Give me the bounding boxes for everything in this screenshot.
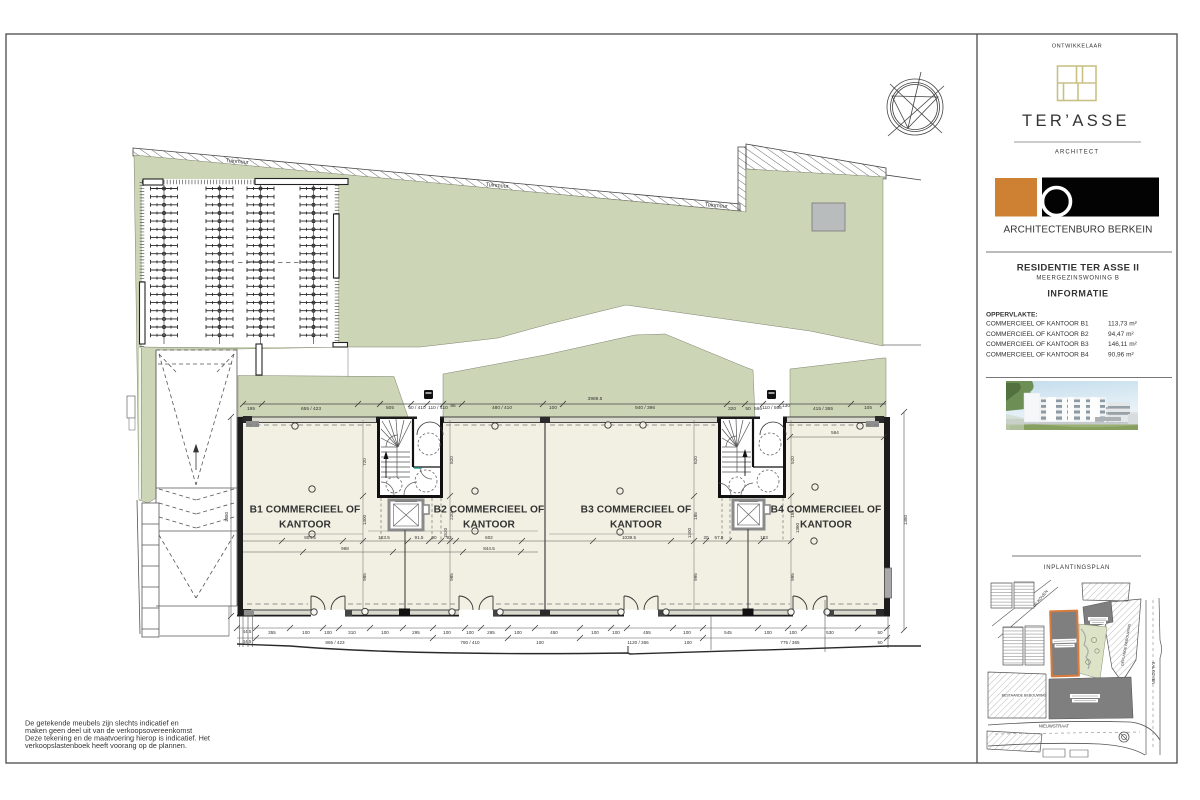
- svg-text:720: 720: [362, 458, 367, 466]
- svg-text:985: 985: [449, 573, 454, 581]
- svg-text:20: 20: [703, 535, 709, 540]
- svg-text:310: 310: [348, 630, 356, 635]
- svg-text:verkoopslastenboek heeft voora: verkoopslastenboek heeft voorang op de p…: [25, 741, 187, 750]
- svg-text:530: 530: [826, 630, 834, 635]
- svg-text:44.5: 44.5: [243, 629, 252, 634]
- svg-text:100: 100: [302, 630, 310, 635]
- svg-text:100: 100: [764, 630, 772, 635]
- svg-text:KALKOVEN: KALKOVEN: [1151, 662, 1156, 685]
- svg-text:TER’ASSE: TER’ASSE: [1022, 112, 1130, 130]
- svg-text:520: 520: [790, 456, 795, 464]
- svg-text:545: 545: [724, 630, 732, 635]
- svg-text:93: 93: [446, 535, 452, 540]
- svg-text:100: 100: [381, 630, 389, 635]
- svg-text:195: 195: [247, 406, 255, 412]
- svg-text:105: 105: [864, 405, 872, 411]
- svg-text:1380: 1380: [224, 511, 229, 522]
- svg-text:3989.5: 3989.5: [588, 396, 603, 402]
- svg-text:50: 50: [745, 406, 751, 412]
- svg-text:100: 100: [536, 640, 544, 645]
- svg-text:B3 COMMERCIEEL OF: B3 COMMERCIEEL OF: [581, 505, 692, 516]
- svg-text:865 / 423: 865 / 423: [325, 640, 345, 645]
- svg-text:185: 185: [693, 512, 698, 520]
- svg-text:566: 566: [754, 406, 762, 412]
- svg-text:94,47 m²: 94,47 m²: [1108, 331, 1134, 338]
- svg-text:100: 100: [612, 630, 620, 635]
- svg-text:90: 90: [431, 535, 437, 540]
- svg-text:1039.5: 1039.5: [622, 535, 636, 540]
- svg-text:COMMERCIEEL OF KANTOOR B1: COMMERCIEEL OF KANTOOR B1: [986, 321, 1089, 328]
- svg-text:100: 100: [789, 630, 797, 635]
- svg-text:820: 820: [449, 456, 454, 464]
- svg-text:480 / 410: 480 / 410: [492, 405, 512, 411]
- svg-text:602: 602: [485, 535, 493, 540]
- svg-text:940 / 396: 940 / 396: [635, 405, 655, 411]
- svg-text:183: 183: [760, 535, 768, 540]
- svg-text:1300: 1300: [687, 527, 692, 538]
- svg-text:130: 130: [782, 403, 790, 409]
- svg-text:564: 564: [831, 430, 839, 435]
- svg-text:MEERGEZINSWONING B: MEERGEZINSWONING B: [1036, 276, 1119, 282]
- svg-text:1300: 1300: [362, 514, 367, 525]
- svg-text:86: 86: [450, 403, 456, 409]
- svg-text:995: 995: [693, 573, 698, 581]
- svg-text:100: 100: [466, 630, 474, 635]
- svg-text:505: 505: [386, 405, 394, 411]
- svg-text:ARCHITECT: ARCHITECT: [1055, 150, 1099, 156]
- svg-text:50: 50: [877, 640, 883, 645]
- svg-text:90,96 m²: 90,96 m²: [1108, 352, 1134, 359]
- svg-text:804.5: 804.5: [304, 535, 316, 540]
- svg-text:BESTAANDE BEBOUWING: BESTAANDE BEBOUWING: [1002, 694, 1047, 698]
- svg-text:995: 995: [790, 573, 795, 581]
- svg-text:ONTWIKKELAAR: ONTWIKKELAAR: [1052, 44, 1102, 50]
- svg-text:455: 455: [643, 630, 651, 635]
- svg-text:1380: 1380: [903, 514, 908, 525]
- svg-text:OPPERVLAKTE:: OPPERVLAKTE:: [986, 312, 1038, 319]
- svg-text:100: 100: [324, 630, 332, 635]
- svg-text:57.5: 57.5: [715, 535, 724, 540]
- svg-text:320: 320: [728, 406, 736, 412]
- svg-text:ARCHITECTENBURO BERKEIN: ARCHITECTENBURO BERKEIN: [1004, 225, 1153, 236]
- svg-text:415 / 365: 415 / 365: [813, 406, 833, 412]
- svg-text:91.5: 91.5: [415, 535, 424, 540]
- svg-text:100: 100: [549, 405, 557, 411]
- svg-text:100: 100: [443, 630, 451, 635]
- svg-text:B4 COMMERCIEEL OF: B4 COMMERCIEEL OF: [771, 505, 882, 516]
- svg-text:110 / 566: 110 / 566: [762, 405, 782, 411]
- svg-text:780 / 410: 780 / 410: [460, 640, 480, 645]
- svg-text:775 / 365: 775 / 365: [780, 640, 800, 645]
- svg-text:100: 100: [684, 640, 692, 645]
- svg-text:50: 50: [877, 630, 883, 635]
- svg-text:655 / 423: 655 / 423: [301, 406, 321, 412]
- svg-text:265: 265: [487, 630, 495, 635]
- svg-text:100: 100: [683, 630, 691, 635]
- svg-text:INFORMATIE: INFORMATIE: [1047, 289, 1108, 299]
- svg-text:620: 620: [693, 456, 698, 464]
- svg-text:KANTOOR: KANTOOR: [279, 520, 332, 531]
- svg-text:985: 985: [362, 573, 367, 581]
- svg-text:50 / 410: 50 / 410: [408, 405, 426, 411]
- svg-text:450: 450: [550, 630, 558, 635]
- svg-text:COMMERCIEEL OF KANTOOR B2: COMMERCIEEL OF KANTOOR B2: [986, 331, 1089, 338]
- svg-text:355: 355: [268, 630, 276, 635]
- svg-text:INPLANTINGSPLAN: INPLANTINGSPLAN: [1044, 565, 1110, 571]
- svg-text:163.5: 163.5: [378, 535, 390, 540]
- svg-text:1120 / 366: 1120 / 366: [627, 640, 649, 645]
- svg-text:295: 295: [412, 630, 420, 635]
- svg-text:110 / 410: 110 / 410: [428, 405, 448, 411]
- svg-text:B1 COMMERCIEEL OF: B1 COMMERCIEEL OF: [250, 505, 361, 516]
- svg-text:NIEUWSTRAAT: NIEUWSTRAAT: [1039, 724, 1070, 729]
- svg-text:844.5: 844.5: [483, 546, 495, 551]
- svg-text:44.5: 44.5: [243, 639, 252, 644]
- svg-text:KANTOOR: KANTOOR: [463, 520, 516, 531]
- svg-text:100: 100: [514, 630, 522, 635]
- svg-text:B2 COMMERCIEEL OF: B2 COMMERCIEEL OF: [434, 505, 545, 516]
- svg-text:968: 968: [341, 546, 349, 551]
- svg-text:KANTOOR: KANTOOR: [610, 520, 663, 531]
- svg-text:COMMERCIEEL OF KANTOOR B4: COMMERCIEEL OF KANTOOR B4: [986, 352, 1089, 359]
- svg-text:KANTOOR: KANTOOR: [800, 520, 853, 531]
- svg-text:146,11 m²: 146,11 m²: [1108, 341, 1138, 348]
- svg-text:113,73 m²: 113,73 m²: [1108, 321, 1138, 328]
- svg-text:100: 100: [591, 630, 599, 635]
- svg-text:COMMERCIEEL OF KANTOOR B3: COMMERCIEEL OF KANTOOR B3: [986, 341, 1089, 348]
- svg-text:RESIDENTIE TER ASSE II: RESIDENTIE TER ASSE II: [1017, 263, 1139, 274]
